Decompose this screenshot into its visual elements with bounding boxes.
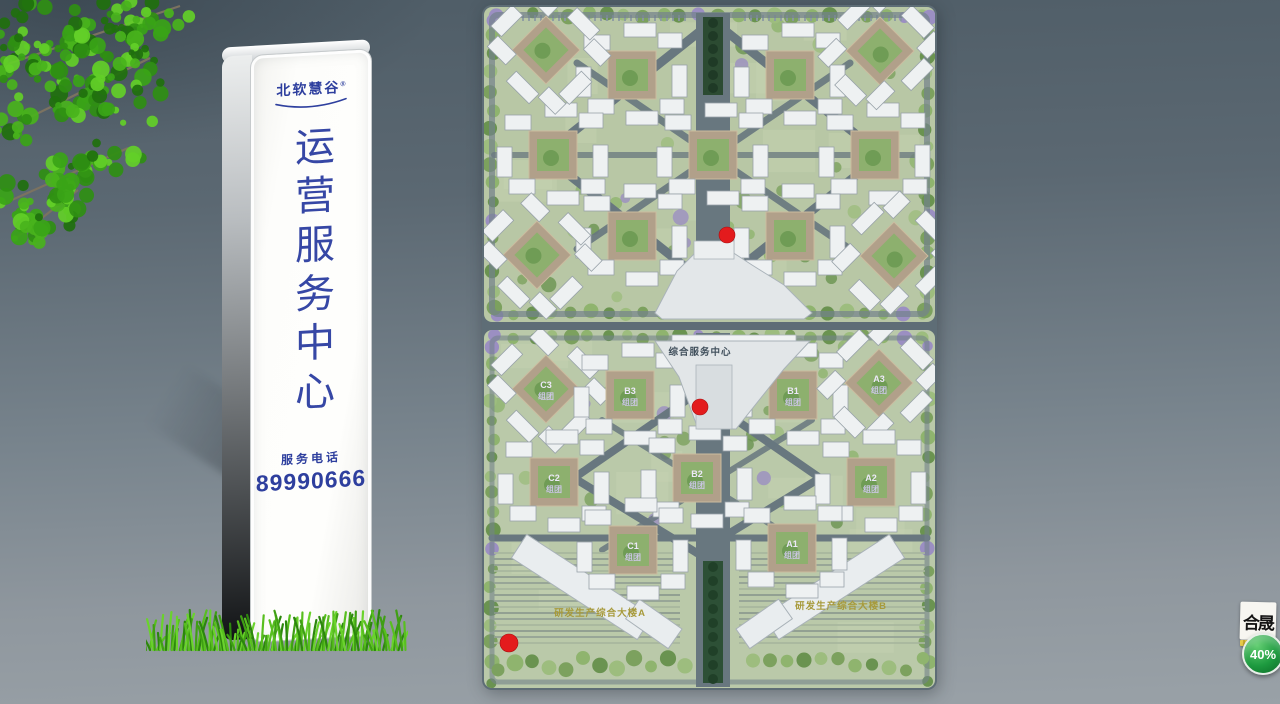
tree-foliage xyxy=(0,0,235,250)
cluster-label: A1 xyxy=(786,539,798,549)
signage-pillar: 北软慧谷® 运营服务中心 服务电话 89990666 xyxy=(214,48,378,652)
pillar-front-face: 北软慧谷® 运营服务中心 服务电话 89990666 xyxy=(250,48,372,643)
service-center-label: 综合服务中心 xyxy=(668,346,731,358)
location-marker[interactable] xyxy=(719,227,735,243)
pillar-title-vertical: 运营服务中心 xyxy=(291,124,331,432)
cluster-label-suffix: 组团 xyxy=(538,391,554,401)
cluster-label-suffix: 组团 xyxy=(689,480,705,490)
watermark: 合晟 40% xyxy=(1236,600,1280,684)
location-marker[interactable] xyxy=(692,399,708,415)
cluster-label: B3 xyxy=(624,386,636,396)
cluster-label: A3 xyxy=(873,374,885,384)
cluster-label-suffix: 组团 xyxy=(546,484,562,494)
brand-name: 北软慧谷 xyxy=(276,79,340,99)
cluster-label: C1 xyxy=(627,541,639,551)
cluster-label: A2 xyxy=(865,473,877,483)
cluster-label: C3 xyxy=(540,380,552,390)
cluster-label-suffix: 组团 xyxy=(622,397,638,407)
site-plan-map: C3组团B3组团B1组团A3组团C2组团B2组团A2组团C1组团A1组团综合服务… xyxy=(482,5,937,690)
cluster-label-suffix: 组团 xyxy=(871,385,887,395)
building-b-label: 研发生产综合大楼B xyxy=(795,600,887,612)
brand-text: 北软慧谷® xyxy=(276,77,345,101)
cluster-label-suffix: 组团 xyxy=(863,484,879,494)
building-a-label: 研发生产综合大楼A xyxy=(554,607,646,619)
pillar-body: 北软慧谷® 运营服务中心 服务电话 89990666 xyxy=(214,39,378,652)
phone-block: 服务电话 89990666 xyxy=(256,446,366,497)
cluster-label-suffix: 组团 xyxy=(785,397,801,407)
cluster-label-suffix: 组团 xyxy=(784,550,800,560)
cluster-label: B2 xyxy=(691,469,703,479)
pillar-side-face xyxy=(222,55,252,641)
scale-badge: 40% xyxy=(1242,633,1280,675)
brand-trademark: ® xyxy=(340,81,345,88)
grass-tuft xyxy=(146,586,408,652)
location-marker[interactable] xyxy=(500,634,518,652)
phone-number: 89990666 xyxy=(256,464,366,497)
cluster-label: C2 xyxy=(548,473,560,483)
cluster-label-suffix: 组团 xyxy=(625,552,641,562)
cluster-label: B1 xyxy=(787,386,799,396)
